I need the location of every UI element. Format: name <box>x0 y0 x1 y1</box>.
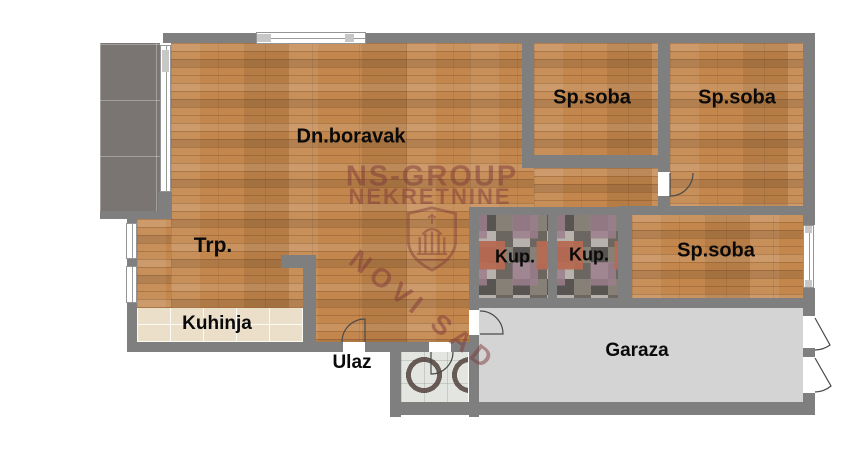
wall <box>618 206 815 215</box>
floor-plan-canvas: NS-GROUP NEKRETNINE NOVI SAD Dn.boravak … <box>0 0 864 467</box>
wall <box>365 33 815 43</box>
wall <box>365 342 429 352</box>
watermark-brand-line2: NEKRETNINE <box>348 184 511 210</box>
wall <box>158 192 172 219</box>
label-bathroom2: Kup. <box>569 245 609 266</box>
wall <box>548 215 557 300</box>
wall <box>522 43 534 168</box>
label-bedroom-top1: Sp.soba <box>553 87 631 110</box>
label-bathroom1: Kup. <box>495 247 535 268</box>
wall <box>522 155 658 168</box>
bedroom-top2-floor <box>670 43 803 206</box>
wall <box>803 348 815 357</box>
window-top-cap <box>345 34 354 42</box>
label-entrance: Ulaz <box>332 352 371 374</box>
wall <box>390 402 815 415</box>
window-right-cap <box>805 280 812 287</box>
label-bedroom-right: Sp.soba <box>677 240 755 263</box>
entrance-porch-floor <box>401 352 468 407</box>
label-dining: Trp. <box>194 234 233 258</box>
hallway-floor <box>534 168 658 207</box>
door-opening-bedroom <box>658 172 670 196</box>
window-right-cap <box>805 226 812 233</box>
wall <box>163 33 257 43</box>
door-opening-garage-right2 <box>803 357 815 393</box>
wall <box>303 255 316 352</box>
wall <box>127 259 137 266</box>
label-living-room: Dn.boravak <box>297 126 406 149</box>
wall <box>658 43 670 172</box>
wall <box>803 43 815 225</box>
wall <box>469 207 479 310</box>
wall <box>469 298 815 308</box>
window-left-1 <box>126 223 137 259</box>
label-kitchen: Kuhinja <box>182 313 252 335</box>
window-left-2 <box>126 266 137 303</box>
window-terrace-cap <box>162 50 169 72</box>
window-right <box>803 225 814 288</box>
door-opening-entrance <box>343 342 365 352</box>
label-bedroom-top2: Sp.soba <box>698 87 776 110</box>
door-opening-garage-right1 <box>803 316 815 348</box>
wall <box>618 215 632 300</box>
wall <box>127 342 343 352</box>
terrace-floor <box>100 43 160 213</box>
label-garage: Garaza <box>605 340 668 362</box>
wall <box>100 211 158 219</box>
window-top-cap <box>257 34 271 42</box>
